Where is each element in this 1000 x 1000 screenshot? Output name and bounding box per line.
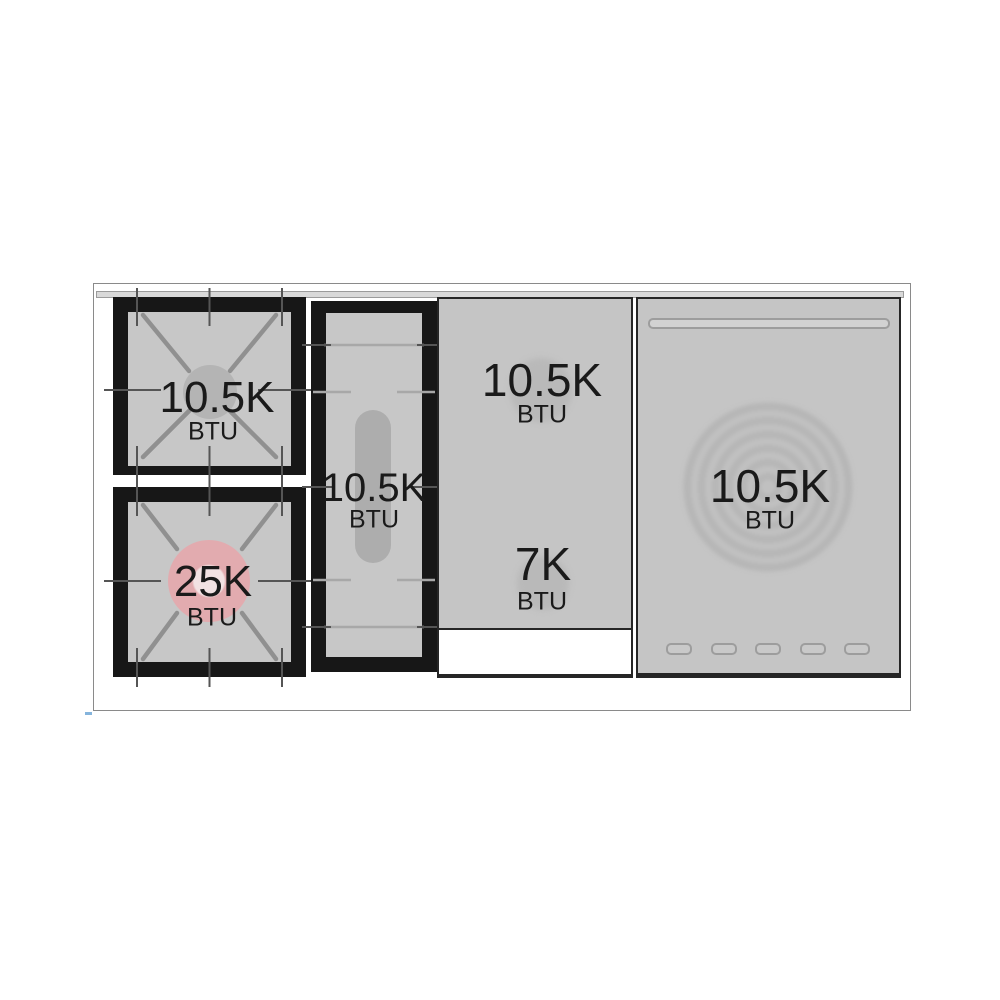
vent-slot [755,643,781,655]
french-top-panel: 10.5K BTU [636,297,901,678]
btu-unit: BTU [517,590,567,615]
btu-unit: BTU [187,606,237,631]
griddle-surface: 10.5K BTU 7K BTU [439,299,631,630]
btu-value: 10.5K [482,357,602,403]
btu-unit: BTU [188,420,238,445]
vent-slot [666,643,692,655]
burner-left-top: 10.5K BTU [113,297,306,475]
griddle-zone-panel: 10.5K BTU 7K BTU [437,297,633,678]
btu-value: 10.5K [160,376,275,420]
vent-slot [844,643,870,655]
vent-slot [711,643,737,655]
btu-value: 7K [515,541,571,587]
rangetop-frame: 10.5K BTU 25K BTU [93,283,911,711]
rangetop-diagram: 10.5K BTU 25K BTU [0,0,1000,1000]
btu-value: 10.5K [322,468,427,508]
btu-unit: BTU [517,403,567,428]
vent-slot [800,643,826,655]
handle-bar [648,318,890,329]
burner-left-bottom: 25K BTU [113,487,306,677]
btu-unit: BTU [745,509,795,534]
btu-value: 10.5K [710,463,830,509]
btu-value: 25K [174,560,252,604]
btu-unit: BTU [349,508,399,533]
artifact-mark [85,712,92,715]
griddle-burner-panel: 10.5K BTU [311,301,437,672]
